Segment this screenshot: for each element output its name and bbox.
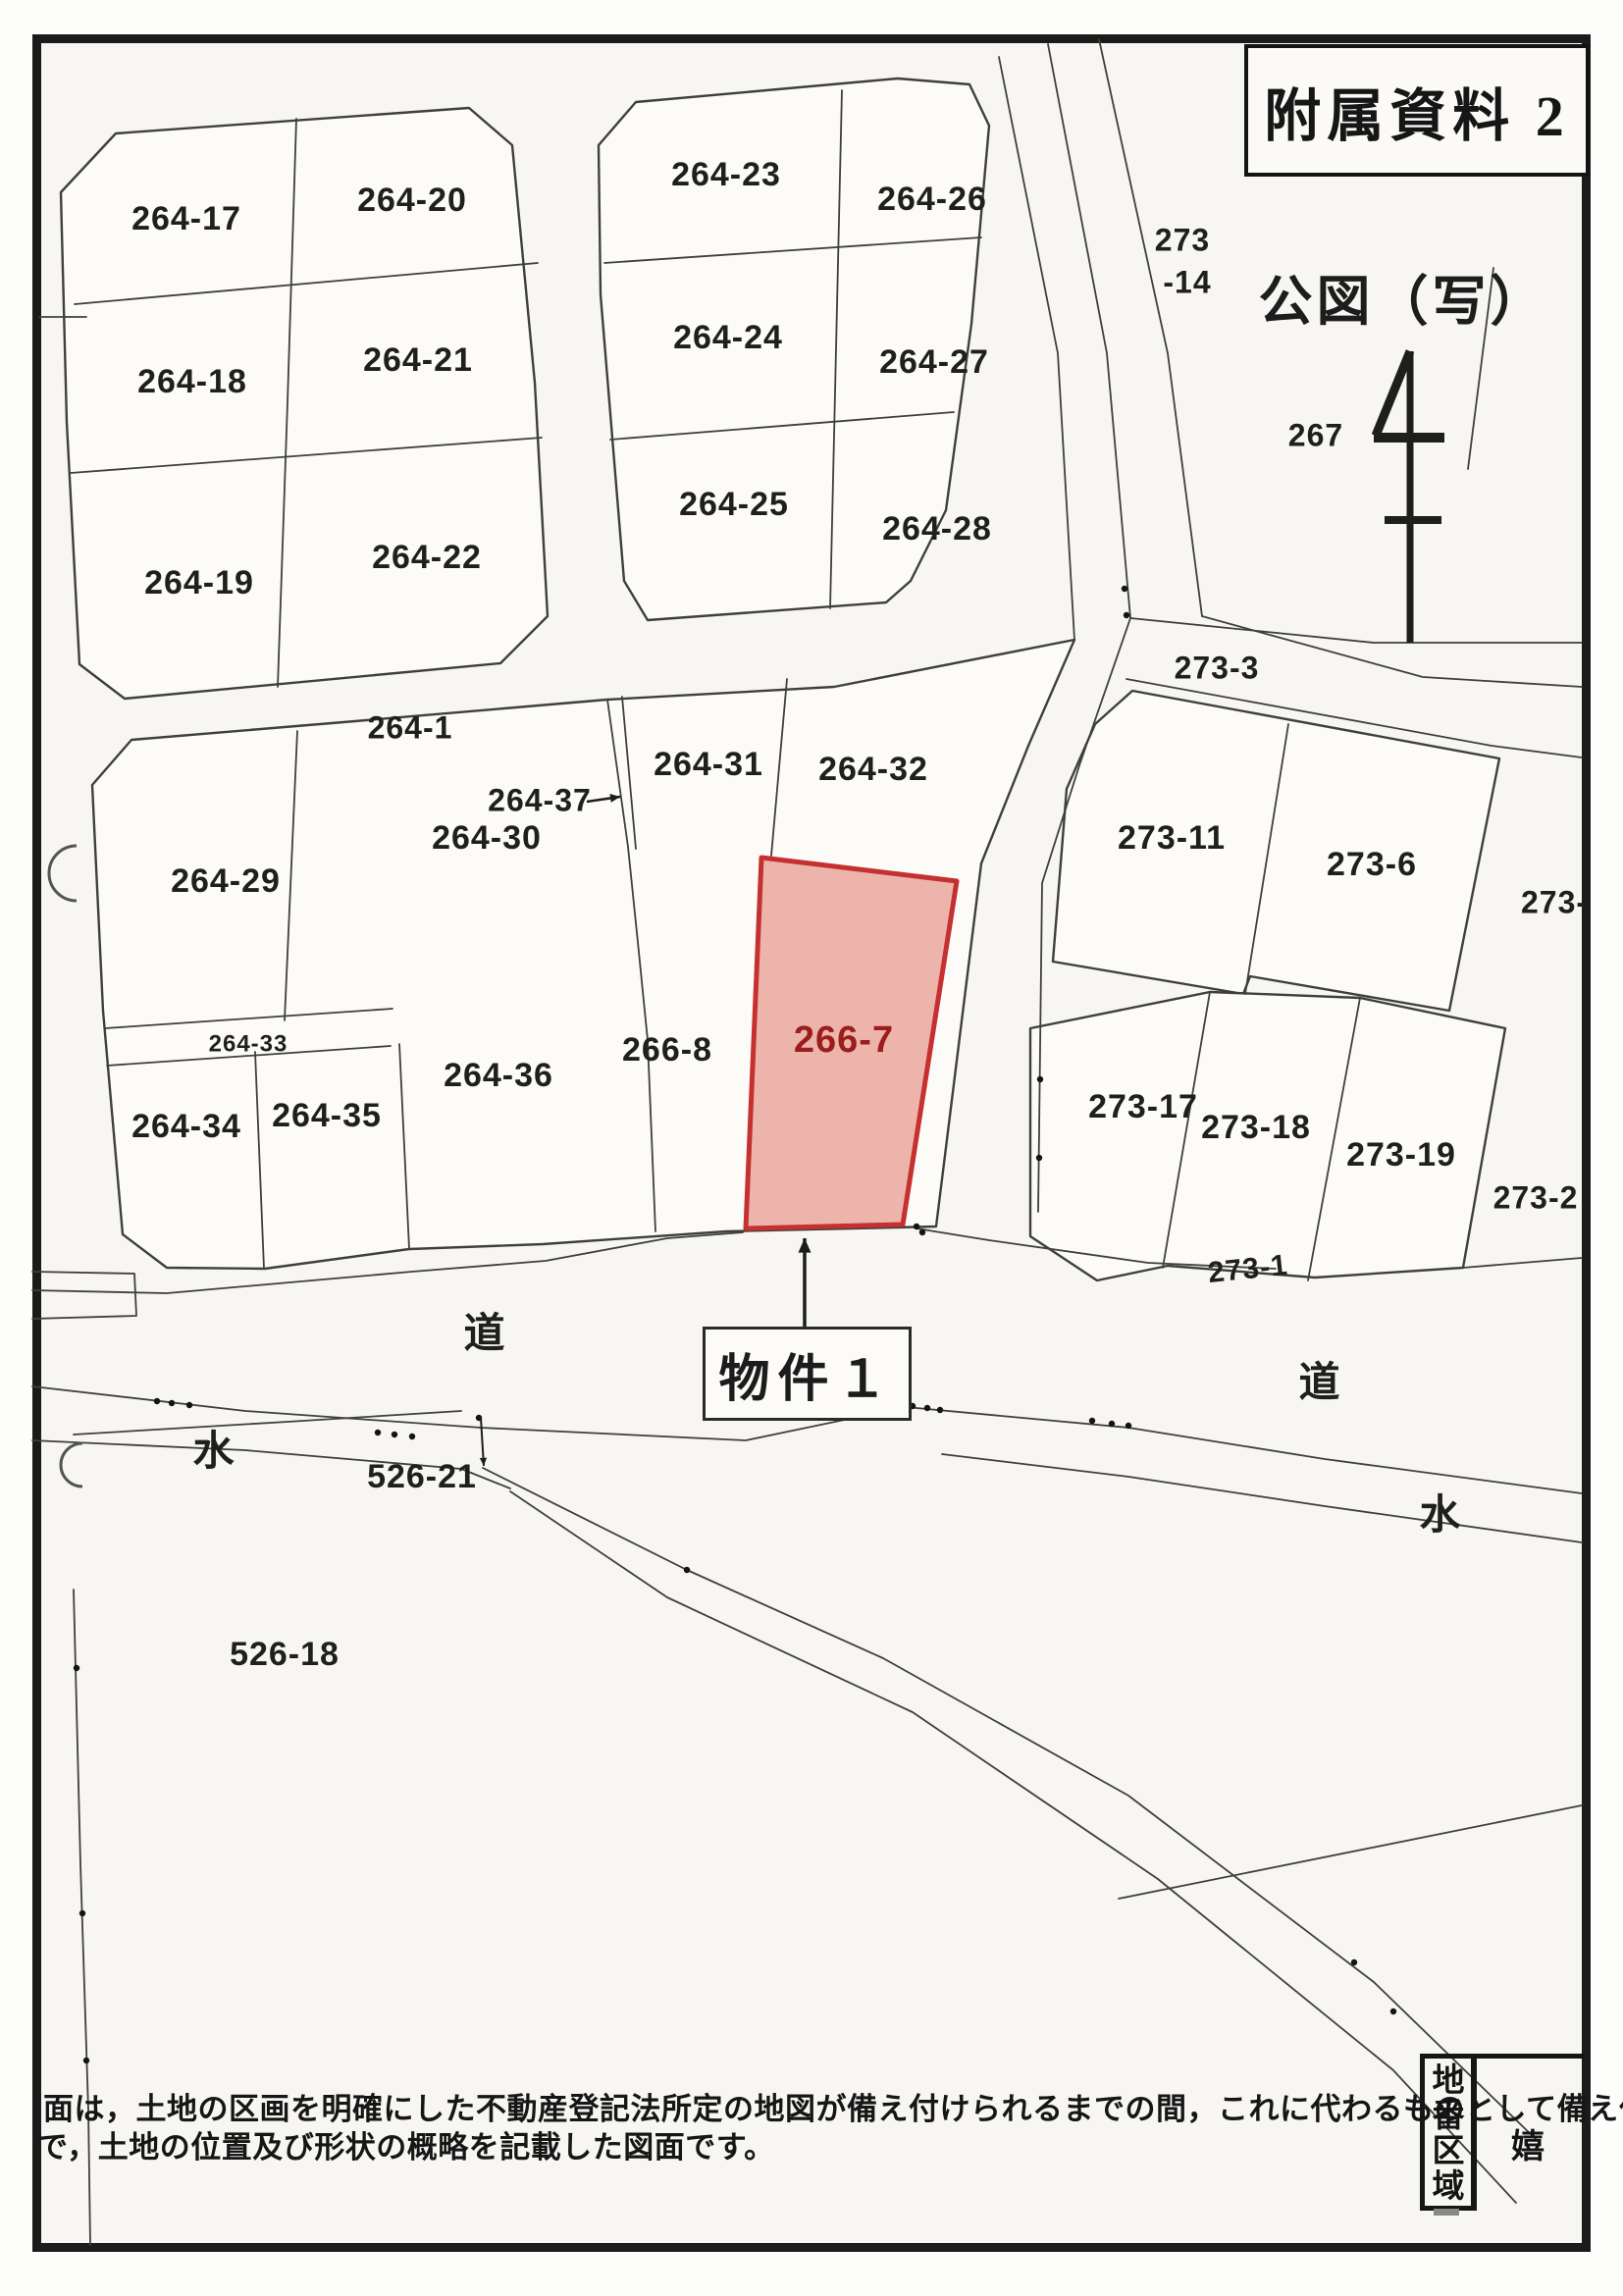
doc-label: 附属資料 2 bbox=[1264, 70, 1570, 152]
d3 bbox=[1099, 39, 1202, 616]
survey-dot-6 bbox=[1109, 1421, 1115, 1427]
parcel-label-273-14b: -14 bbox=[1163, 264, 1211, 299]
block-264-17-22 bbox=[61, 108, 548, 699]
parcel-label-264-35: 264-35 bbox=[272, 1097, 382, 1134]
survey-dot-18 bbox=[1036, 1155, 1042, 1161]
parcel-label-264-28: 264-28 bbox=[882, 510, 992, 548]
cadastral-map-drawing: 264-17264-20264-18264-21264-19264-22264-… bbox=[0, 0, 1623, 2296]
survey-dot-0 bbox=[914, 1224, 919, 1229]
survey-dot-21 bbox=[83, 2058, 89, 2063]
parcel-label-264-20: 264-20 bbox=[357, 182, 467, 219]
parcel-label-273-19: 273-19 bbox=[1346, 1136, 1456, 1174]
tick-526-21-head bbox=[480, 1458, 487, 1466]
survey-dot-16 bbox=[1124, 612, 1129, 618]
north-symbol-stroke-0 bbox=[1376, 351, 1410, 436]
survey-dot-24 bbox=[684, 1567, 690, 1573]
survey-dot-9 bbox=[169, 1400, 175, 1406]
parcel-label-526-18: 526-18 bbox=[230, 1636, 340, 1673]
parcel-label-267: 267 bbox=[1288, 417, 1343, 452]
left-step bbox=[32, 1272, 136, 1319]
legal-note-line2: で，土地の位置及び形状の概略を記載した図面です。 bbox=[37, 2122, 775, 2166]
parcel-label-264-21: 264-21 bbox=[363, 341, 473, 379]
parcel-label-264-1: 264-1 bbox=[368, 709, 453, 745]
parcel-label-water-right: 水 bbox=[1419, 1491, 1461, 1538]
callout-arrow-head bbox=[798, 1238, 811, 1253]
parcel-label-264-30: 264-30 bbox=[432, 819, 542, 857]
right-bottom-line bbox=[1119, 1805, 1582, 1899]
parcel-label-road-right: 道 bbox=[1298, 1359, 1340, 1405]
property-callout-label: 物件１ bbox=[718, 1337, 895, 1411]
scan-smudge bbox=[1434, 2209, 1459, 2216]
parcel-label-264-32: 264-32 bbox=[818, 751, 928, 788]
road-north-far-right bbox=[1463, 1258, 1582, 1268]
parcel-label-264-18: 264-18 bbox=[137, 363, 247, 400]
scan-arc-2 bbox=[61, 1443, 82, 1487]
parcel-label-264-25: 264-25 bbox=[679, 486, 789, 523]
survey-dot-5 bbox=[1089, 1418, 1095, 1424]
stamp-box-top-line bbox=[1420, 2054, 1585, 2059]
survey-dot-3 bbox=[924, 1405, 930, 1411]
stamp-box-left-line bbox=[1420, 2054, 1425, 2211]
survey-dot-20 bbox=[79, 1910, 85, 1916]
parcel-label-273-3: 273-3 bbox=[1175, 650, 1260, 685]
parcel-label-273-14a: 273 bbox=[1155, 222, 1210, 257]
parcel-label-264-23: 264-23 bbox=[671, 156, 781, 193]
survey-dot-23 bbox=[1390, 2009, 1396, 2014]
parcel-label-273-6: 273-6 bbox=[1327, 846, 1417, 883]
survey-dot-4 bbox=[937, 1407, 943, 1413]
parcel-label-264-29: 264-29 bbox=[171, 862, 281, 900]
cadastral-map-page: 264-17264-20264-18264-21264-19264-22264-… bbox=[0, 0, 1623, 2296]
parcel-label-264-36: 264-36 bbox=[444, 1057, 553, 1094]
parcel-label-273-17: 273-17 bbox=[1088, 1088, 1198, 1125]
survey-dot-17 bbox=[1037, 1076, 1043, 1082]
parcel-label-264-33: 264-33 bbox=[209, 1030, 288, 1057]
parcel-label-526-21: 526-21 bbox=[367, 1458, 477, 1495]
parcel-label-264-37: 264-37 bbox=[488, 782, 592, 817]
survey-dot-13 bbox=[409, 1434, 415, 1439]
parcel-label-264-22: 264-22 bbox=[372, 539, 482, 576]
survey-dot-8 bbox=[154, 1398, 160, 1404]
parcel-label-266-8: 266-8 bbox=[622, 1031, 712, 1069]
parcel-label-264-19: 264-19 bbox=[144, 564, 254, 601]
d1-upper bbox=[999, 57, 1074, 640]
survey-dot-1 bbox=[919, 1229, 925, 1235]
survey-dot-19 bbox=[74, 1665, 79, 1671]
parcel-label-264-27: 264-27 bbox=[879, 343, 989, 381]
east-road-1 bbox=[1130, 618, 1582, 643]
survey-dot-15 bbox=[1122, 586, 1127, 592]
parcel-label-264-34: 264-34 bbox=[131, 1108, 241, 1145]
stamp-col2-label: 嬉 bbox=[1511, 2119, 1544, 2167]
water-south-right bbox=[942, 1454, 1582, 1542]
parcel-label-273-11: 273-11 bbox=[1118, 819, 1226, 857]
parcel-label-264-17: 264-17 bbox=[131, 200, 241, 237]
curve-1 bbox=[483, 1468, 1536, 2139]
parcel-label-273-cut: 273- bbox=[1521, 884, 1588, 919]
parcel-label-water-left: 水 bbox=[192, 1428, 235, 1474]
doc-label-box: 附属資料 2 bbox=[1244, 44, 1590, 177]
stamp-col1-label: 地番区域 bbox=[1427, 2062, 1470, 2204]
scan-arc-1 bbox=[49, 846, 77, 901]
stamp-box-divider-line bbox=[1471, 2054, 1477, 2211]
parcel-label-264-26: 264-26 bbox=[877, 181, 987, 218]
parcel-label-road-left: 道 bbox=[463, 1310, 505, 1356]
property-callout-box: 物件１ bbox=[703, 1327, 912, 1421]
parcel-label-273-2cut: 273-2 bbox=[1493, 1179, 1579, 1215]
survey-dot-7 bbox=[1126, 1423, 1131, 1429]
map-title: 公図（写） bbox=[1236, 257, 1570, 336]
survey-dot-12 bbox=[392, 1432, 397, 1437]
parcel-label-264-24: 264-24 bbox=[673, 319, 783, 356]
survey-dot-10 bbox=[186, 1402, 192, 1408]
parcel-label-264-31: 264-31 bbox=[654, 746, 763, 783]
parcel-label-266-7: 266-7 bbox=[794, 1019, 894, 1061]
parcel-label-273-18: 273-18 bbox=[1201, 1109, 1311, 1146]
survey-dot-11 bbox=[375, 1430, 381, 1435]
survey-dot-22 bbox=[1351, 1959, 1357, 1965]
